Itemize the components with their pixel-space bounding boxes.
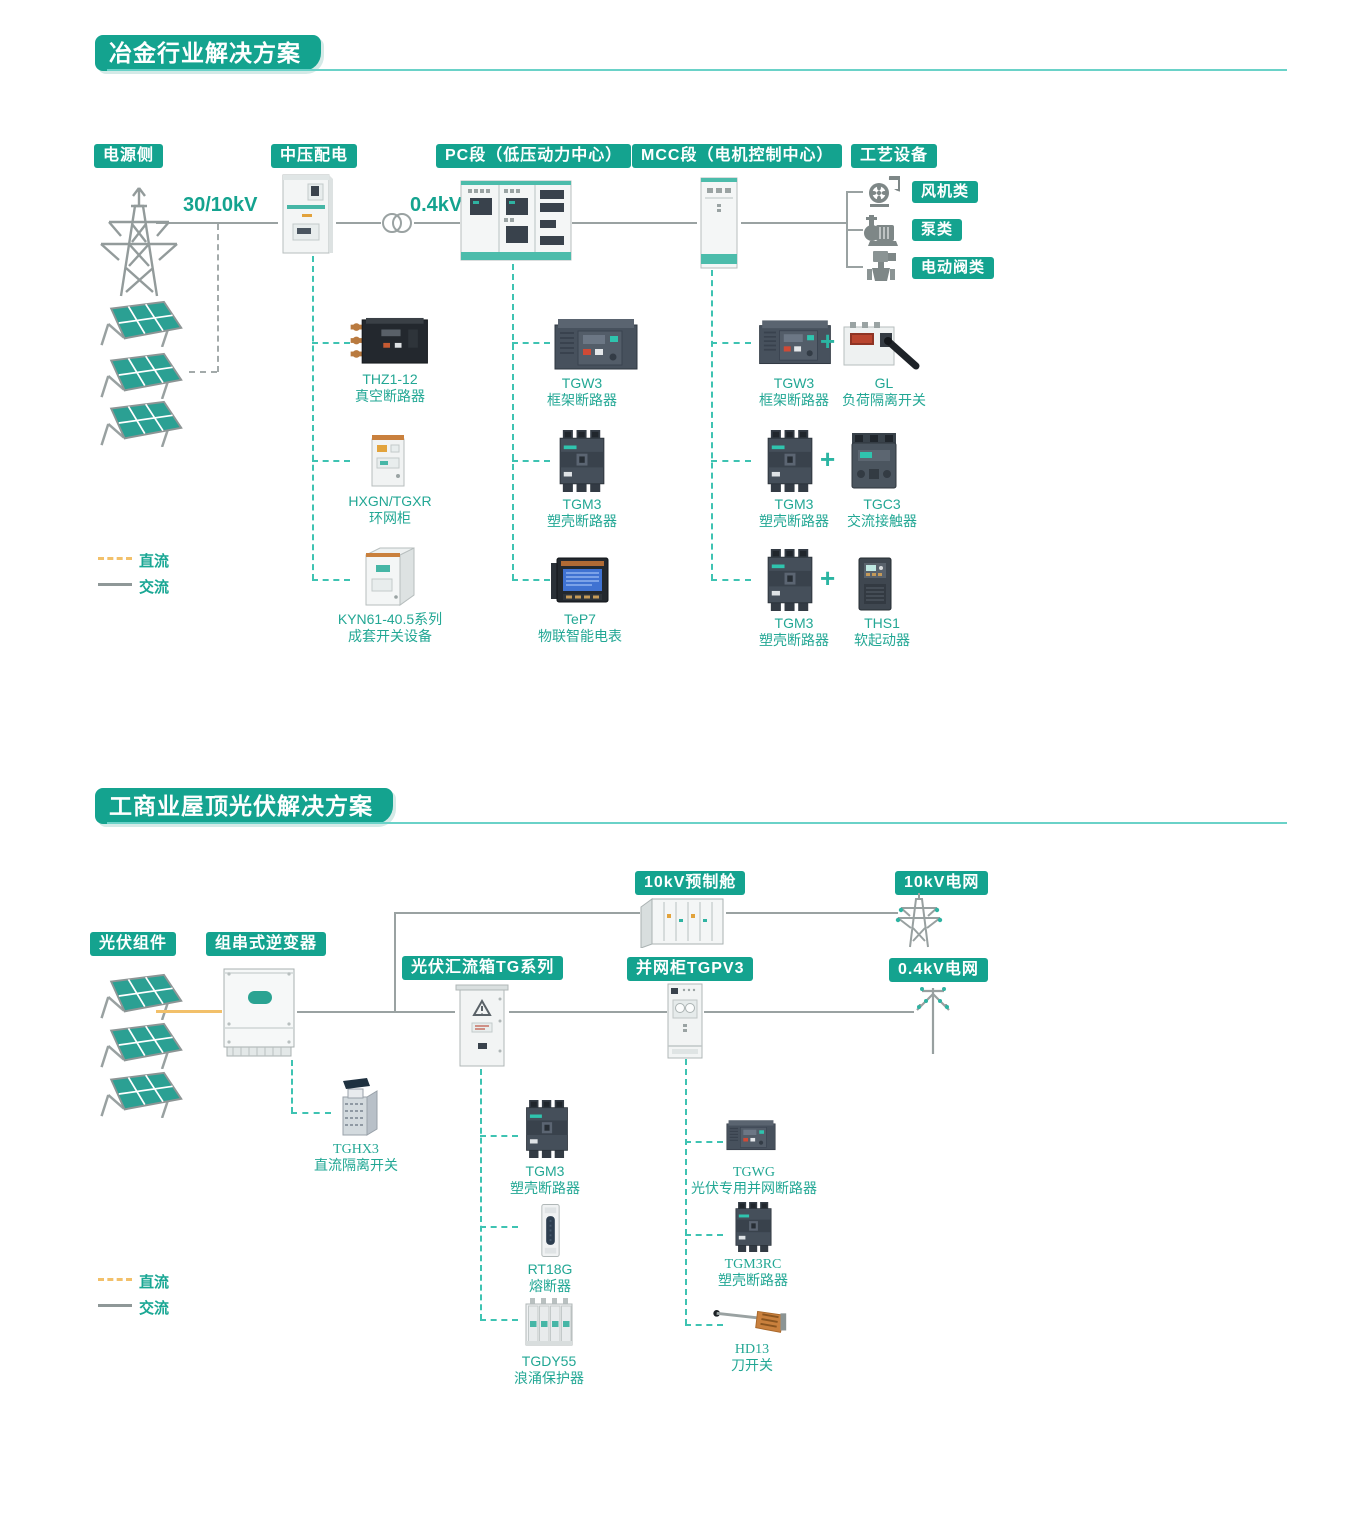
- mcc-cabinet-image: [697, 176, 741, 270]
- pump-icon: [860, 213, 900, 247]
- tghx3-dc-switch-image: [331, 1077, 381, 1139]
- gl-switch-image: [842, 321, 922, 371]
- legend-ac-label: 交流: [139, 576, 169, 597]
- combiner-products-dashed-line: [480, 1069, 482, 1320]
- inverter-products-dashed-line: [291, 1060, 293, 1113]
- grid-cabinet-image: [666, 982, 704, 1060]
- section2-underline: [107, 822, 1287, 824]
- legend-dc-label: 直流: [139, 550, 169, 571]
- ac-line-combiner-to-cabinet: [509, 1011, 667, 1013]
- hd13-knife-switch-image: [710, 1305, 790, 1335]
- ac-line-mcc-to-equipment: [741, 222, 847, 224]
- product-label: RT18G 熔断器: [495, 1261, 605, 1295]
- solar-panel-icon: [94, 351, 184, 399]
- product-desc: 软起动器: [834, 632, 930, 649]
- fan-icon: [864, 176, 900, 208]
- thz1-12-breaker-image: [348, 317, 432, 365]
- product-model: GL: [836, 375, 932, 392]
- transmission-tower-icon: [90, 182, 188, 298]
- plus-sign: +: [820, 328, 835, 354]
- transformer-icon: [380, 211, 414, 235]
- combiner-product-branch: [480, 1226, 518, 1228]
- pc-product-branch: [512, 579, 550, 581]
- product-desc: 熔断器: [495, 1278, 605, 1295]
- kyn-switchgear-image: [356, 545, 420, 609]
- plus-sign: +: [820, 565, 835, 591]
- product-desc: 光伏专用并网断路器: [676, 1181, 832, 1198]
- 04kv-utility-pole-icon: [910, 982, 956, 1056]
- ac-line-cabinet-to-pole: [704, 1011, 914, 1013]
- equipment-label-fans: 风机类: [912, 181, 978, 203]
- product-model: HXGN/TGXR: [328, 493, 452, 510]
- tgm3rc-mccb-image: [731, 1202, 776, 1252]
- product-label: THS1 软起动器: [834, 615, 930, 649]
- product-label: TGM3 塑壳断路器: [490, 1163, 600, 1197]
- stage-label-pv-modules: 光伏组件: [90, 932, 176, 956]
- rt18g-fuse-image: [538, 1203, 563, 1258]
- mv-product-branch: [312, 460, 350, 462]
- product-desc: 环网柜: [328, 510, 452, 527]
- tgm3-mccb-image: [765, 430, 815, 492]
- product-desc: 塑壳断路器: [490, 1180, 600, 1197]
- voltage-label-lv: 0.4kV: [410, 194, 462, 217]
- stage-label-10kv-cabin: 10kV预制舱: [635, 871, 745, 895]
- equipment-stub-fan: [846, 191, 863, 193]
- product-label: TGC3 交流接触器: [834, 496, 930, 530]
- product-desc: 刀开关: [714, 1358, 790, 1375]
- section2-title: 工商业屋顶光伏解决方案: [95, 788, 393, 824]
- ring-main-unit-image: [365, 434, 411, 488]
- solar-panel-icon: [94, 1021, 184, 1069]
- pc-cabinet-image: [460, 176, 572, 264]
- product-desc: 直流隔离开关: [296, 1158, 416, 1175]
- mcc-product-branch: [711, 579, 751, 581]
- legend-ac-line: [98, 1304, 132, 1307]
- ac-line-riser: [394, 913, 396, 1013]
- dc-line-panels-to-inverter: [156, 1010, 222, 1013]
- legend-ac-label: 交流: [139, 1297, 169, 1318]
- product-model: TGM3: [490, 1163, 600, 1180]
- ths1-softstarter-image: [856, 556, 894, 612]
- product-label: GL 负荷隔离开关: [836, 375, 932, 409]
- product-label: TGW3 框架断路器: [748, 375, 840, 409]
- pc-product-branch: [512, 460, 550, 462]
- tgm3-mccb-image: [556, 430, 608, 492]
- mv-products-dashed-line: [312, 256, 314, 580]
- solar-panel-icon: [94, 299, 184, 347]
- product-model: TGW3: [748, 375, 840, 392]
- product-desc: 真空断路器: [328, 388, 452, 405]
- legend-dc-line: [98, 557, 132, 560]
- mv-switchgear-cabinet-image: [278, 172, 336, 256]
- product-desc: 塑壳断路器: [522, 513, 642, 530]
- product-label: HXGN/TGXR 环网柜: [328, 493, 452, 527]
- stage-label-grid-cabinet: 并网柜TGPV3: [627, 957, 753, 981]
- product-label: TGM3 塑壳断路器: [522, 496, 642, 530]
- solution-diagram-page: 冶金行业解决方案 电源侧 中压配电 PC段（低压动力中心） MCC段（电机控制中…: [0, 0, 1350, 1528]
- product-model: TGM3RC: [693, 1256, 813, 1273]
- product-model: TGW3: [522, 375, 642, 392]
- ac-line-cabin-to-grid: [726, 912, 898, 914]
- product-label: HD13 刀开关: [714, 1341, 790, 1375]
- pc-products-dashed-line: [512, 264, 514, 580]
- ac-line-mv-to-transformer: [336, 222, 381, 224]
- product-label: TGDY55 浪涌保护器: [490, 1353, 608, 1387]
- ac-line-riser-top: [394, 912, 640, 914]
- product-desc: 塑壳断路器: [693, 1273, 813, 1290]
- tgc3-contactor-image: [849, 430, 899, 492]
- mcc-product-branch: [711, 460, 751, 462]
- stage-label-process-equipment: 工艺设备: [851, 144, 937, 168]
- product-desc: 成套开关设备: [316, 628, 464, 645]
- product-desc: 框架断路器: [522, 392, 642, 409]
- prefab-cabin-image: [638, 894, 726, 948]
- equipment-label-pumps: 泵类: [912, 219, 962, 241]
- tgm3-mccb-image: [523, 1100, 571, 1158]
- product-model: TGC3: [834, 496, 930, 513]
- inverter-product-branch: [291, 1112, 331, 1114]
- stage-label-power-source: 电源侧: [94, 144, 163, 168]
- legend-ac-line: [98, 583, 132, 586]
- mcc-product-branch: [711, 342, 751, 344]
- product-model: TGDY55: [490, 1353, 608, 1370]
- stage-label-04kv-grid: 0.4kV电网: [889, 958, 988, 982]
- string-inverter-image: [221, 966, 297, 1060]
- stage-label-mv-distribution: 中压配电: [271, 144, 357, 168]
- product-label: KYN61-40.5系列 成套开关设备: [316, 611, 464, 645]
- product-model: TGM3: [748, 615, 840, 632]
- product-label: TeP7 物联智能电表: [518, 611, 642, 645]
- combiner-product-branch: [480, 1135, 518, 1137]
- stage-label-pc-section: PC段（低压动力中心）: [436, 144, 631, 168]
- product-label: THZ1-12 真空断路器: [328, 371, 452, 405]
- plus-sign: +: [820, 446, 835, 472]
- pc-product-branch: [512, 342, 550, 344]
- product-desc: 塑壳断路器: [748, 632, 840, 649]
- legend-dc-label: 直流: [139, 1271, 169, 1292]
- product-model: TGHX3: [296, 1141, 416, 1158]
- product-label: TGM3 塑壳断路器: [748, 615, 840, 649]
- equipment-stub-valve: [846, 266, 863, 268]
- mv-product-branch: [312, 342, 350, 344]
- ac-line-pc-to-mcc: [572, 222, 697, 224]
- combiner-box-image: [455, 981, 509, 1069]
- combiner-product-branch: [480, 1319, 518, 1321]
- product-model: THZ1-12: [328, 371, 452, 388]
- product-desc: 交流接触器: [834, 513, 930, 530]
- dc-dashed-riser: [217, 224, 219, 372]
- product-label: TGM3 塑壳断路器: [748, 496, 840, 530]
- mcc-products-dashed-line: [711, 270, 713, 580]
- product-desc: 负荷隔离开关: [836, 392, 932, 409]
- stage-label-string-inverter: 组串式逆变器: [206, 932, 326, 956]
- product-desc: 浪涌保护器: [490, 1370, 608, 1387]
- ac-line-inverter-to-combiner: [297, 1011, 455, 1013]
- product-label: TGW3 框架断路器: [522, 375, 642, 409]
- product-model: RT18G: [495, 1261, 605, 1278]
- valve-icon: [864, 249, 900, 285]
- tep7-meter-image: [550, 556, 610, 604]
- product-label: TGM3RC 塑壳断路器: [693, 1256, 813, 1290]
- solar-panel-icon: [94, 1070, 184, 1118]
- product-model: HD13: [714, 1341, 790, 1358]
- equipment-label-valves: 电动阀类: [912, 257, 994, 279]
- voltage-label-hv: 30/10kV: [183, 194, 258, 217]
- tgw3-breaker-image: [552, 317, 640, 371]
- section1-title: 冶金行业解决方案: [95, 35, 321, 71]
- stage-label-mcc-section: MCC段（电机控制中心）: [632, 144, 842, 168]
- grid-product-branch: [685, 1234, 723, 1236]
- grid-product-branch: [685, 1141, 723, 1143]
- product-label: TGHX3 直流隔离开关: [296, 1141, 416, 1175]
- tgm3-mccb-image: [765, 549, 815, 611]
- 10kv-grid-tower-icon: [891, 891, 947, 949]
- dc-dashed-branch-to-panels: [189, 371, 217, 373]
- product-model: TGM3: [748, 496, 840, 513]
- product-desc: 框架断路器: [748, 392, 840, 409]
- product-label: TGWG 光伏专用并网断路器: [676, 1164, 832, 1198]
- tgdy55-spd-image: [524, 1297, 574, 1351]
- solar-panel-icon: [94, 399, 184, 447]
- mv-product-branch: [312, 579, 350, 581]
- ac-line-transformer-to-pc: [414, 222, 460, 224]
- product-model: TGWG: [676, 1164, 832, 1181]
- product-desc: 塑壳断路器: [748, 513, 840, 530]
- legend-dc-line: [98, 1278, 132, 1281]
- product-model: KYN61-40.5系列: [316, 611, 464, 628]
- section1-underline: [107, 69, 1287, 71]
- product-model: TGM3: [522, 496, 642, 513]
- product-model: THS1: [834, 615, 930, 632]
- product-model: TeP7: [518, 611, 642, 628]
- product-desc: 物联智能电表: [518, 628, 642, 645]
- tgwg-breaker-image: [725, 1112, 777, 1158]
- stage-label-combiner-box: 光伏汇流箱TG系列: [402, 956, 563, 980]
